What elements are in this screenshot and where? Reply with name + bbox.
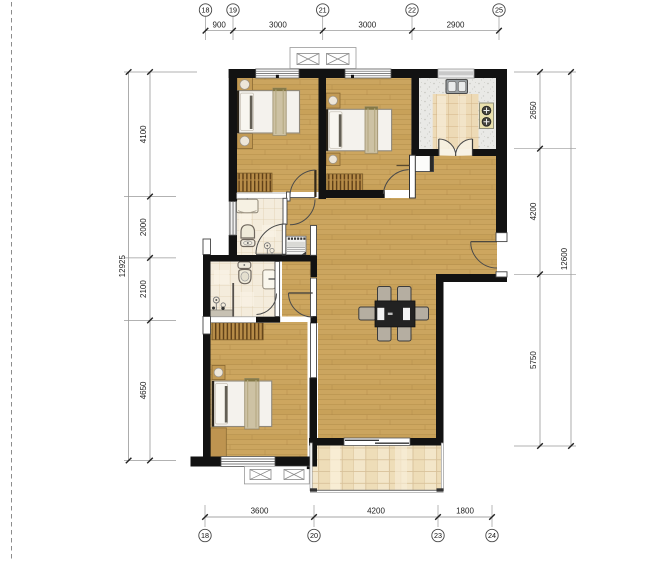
svg-text:5750: 5750 [529,351,538,369]
svg-text:25: 25 [495,5,503,14]
svg-text:2000: 2000 [139,218,148,236]
svg-text:4650: 4650 [139,381,148,399]
svg-text:3000: 3000 [358,20,376,29]
svg-text:4200: 4200 [367,507,385,516]
svg-text:23: 23 [434,531,442,540]
svg-text:3000: 3000 [269,20,287,29]
svg-text:2900: 2900 [447,20,465,29]
svg-text:21: 21 [319,5,327,14]
svg-text:18: 18 [202,5,210,14]
svg-text:22: 22 [408,5,416,14]
svg-text:4100: 4100 [139,125,148,143]
svg-text:12600: 12600 [560,247,569,270]
svg-text:24: 24 [488,531,496,540]
svg-text:2100: 2100 [139,280,148,298]
svg-text:19: 19 [229,5,237,14]
svg-text:4200: 4200 [529,202,538,220]
svg-text:12925: 12925 [118,255,127,278]
svg-text:18: 18 [201,531,209,540]
svg-text:3600: 3600 [251,507,269,516]
svg-text:2650: 2650 [529,101,538,119]
svg-text:20: 20 [310,531,318,540]
svg-text:900: 900 [213,20,227,29]
svg-text:1800: 1800 [456,507,474,516]
